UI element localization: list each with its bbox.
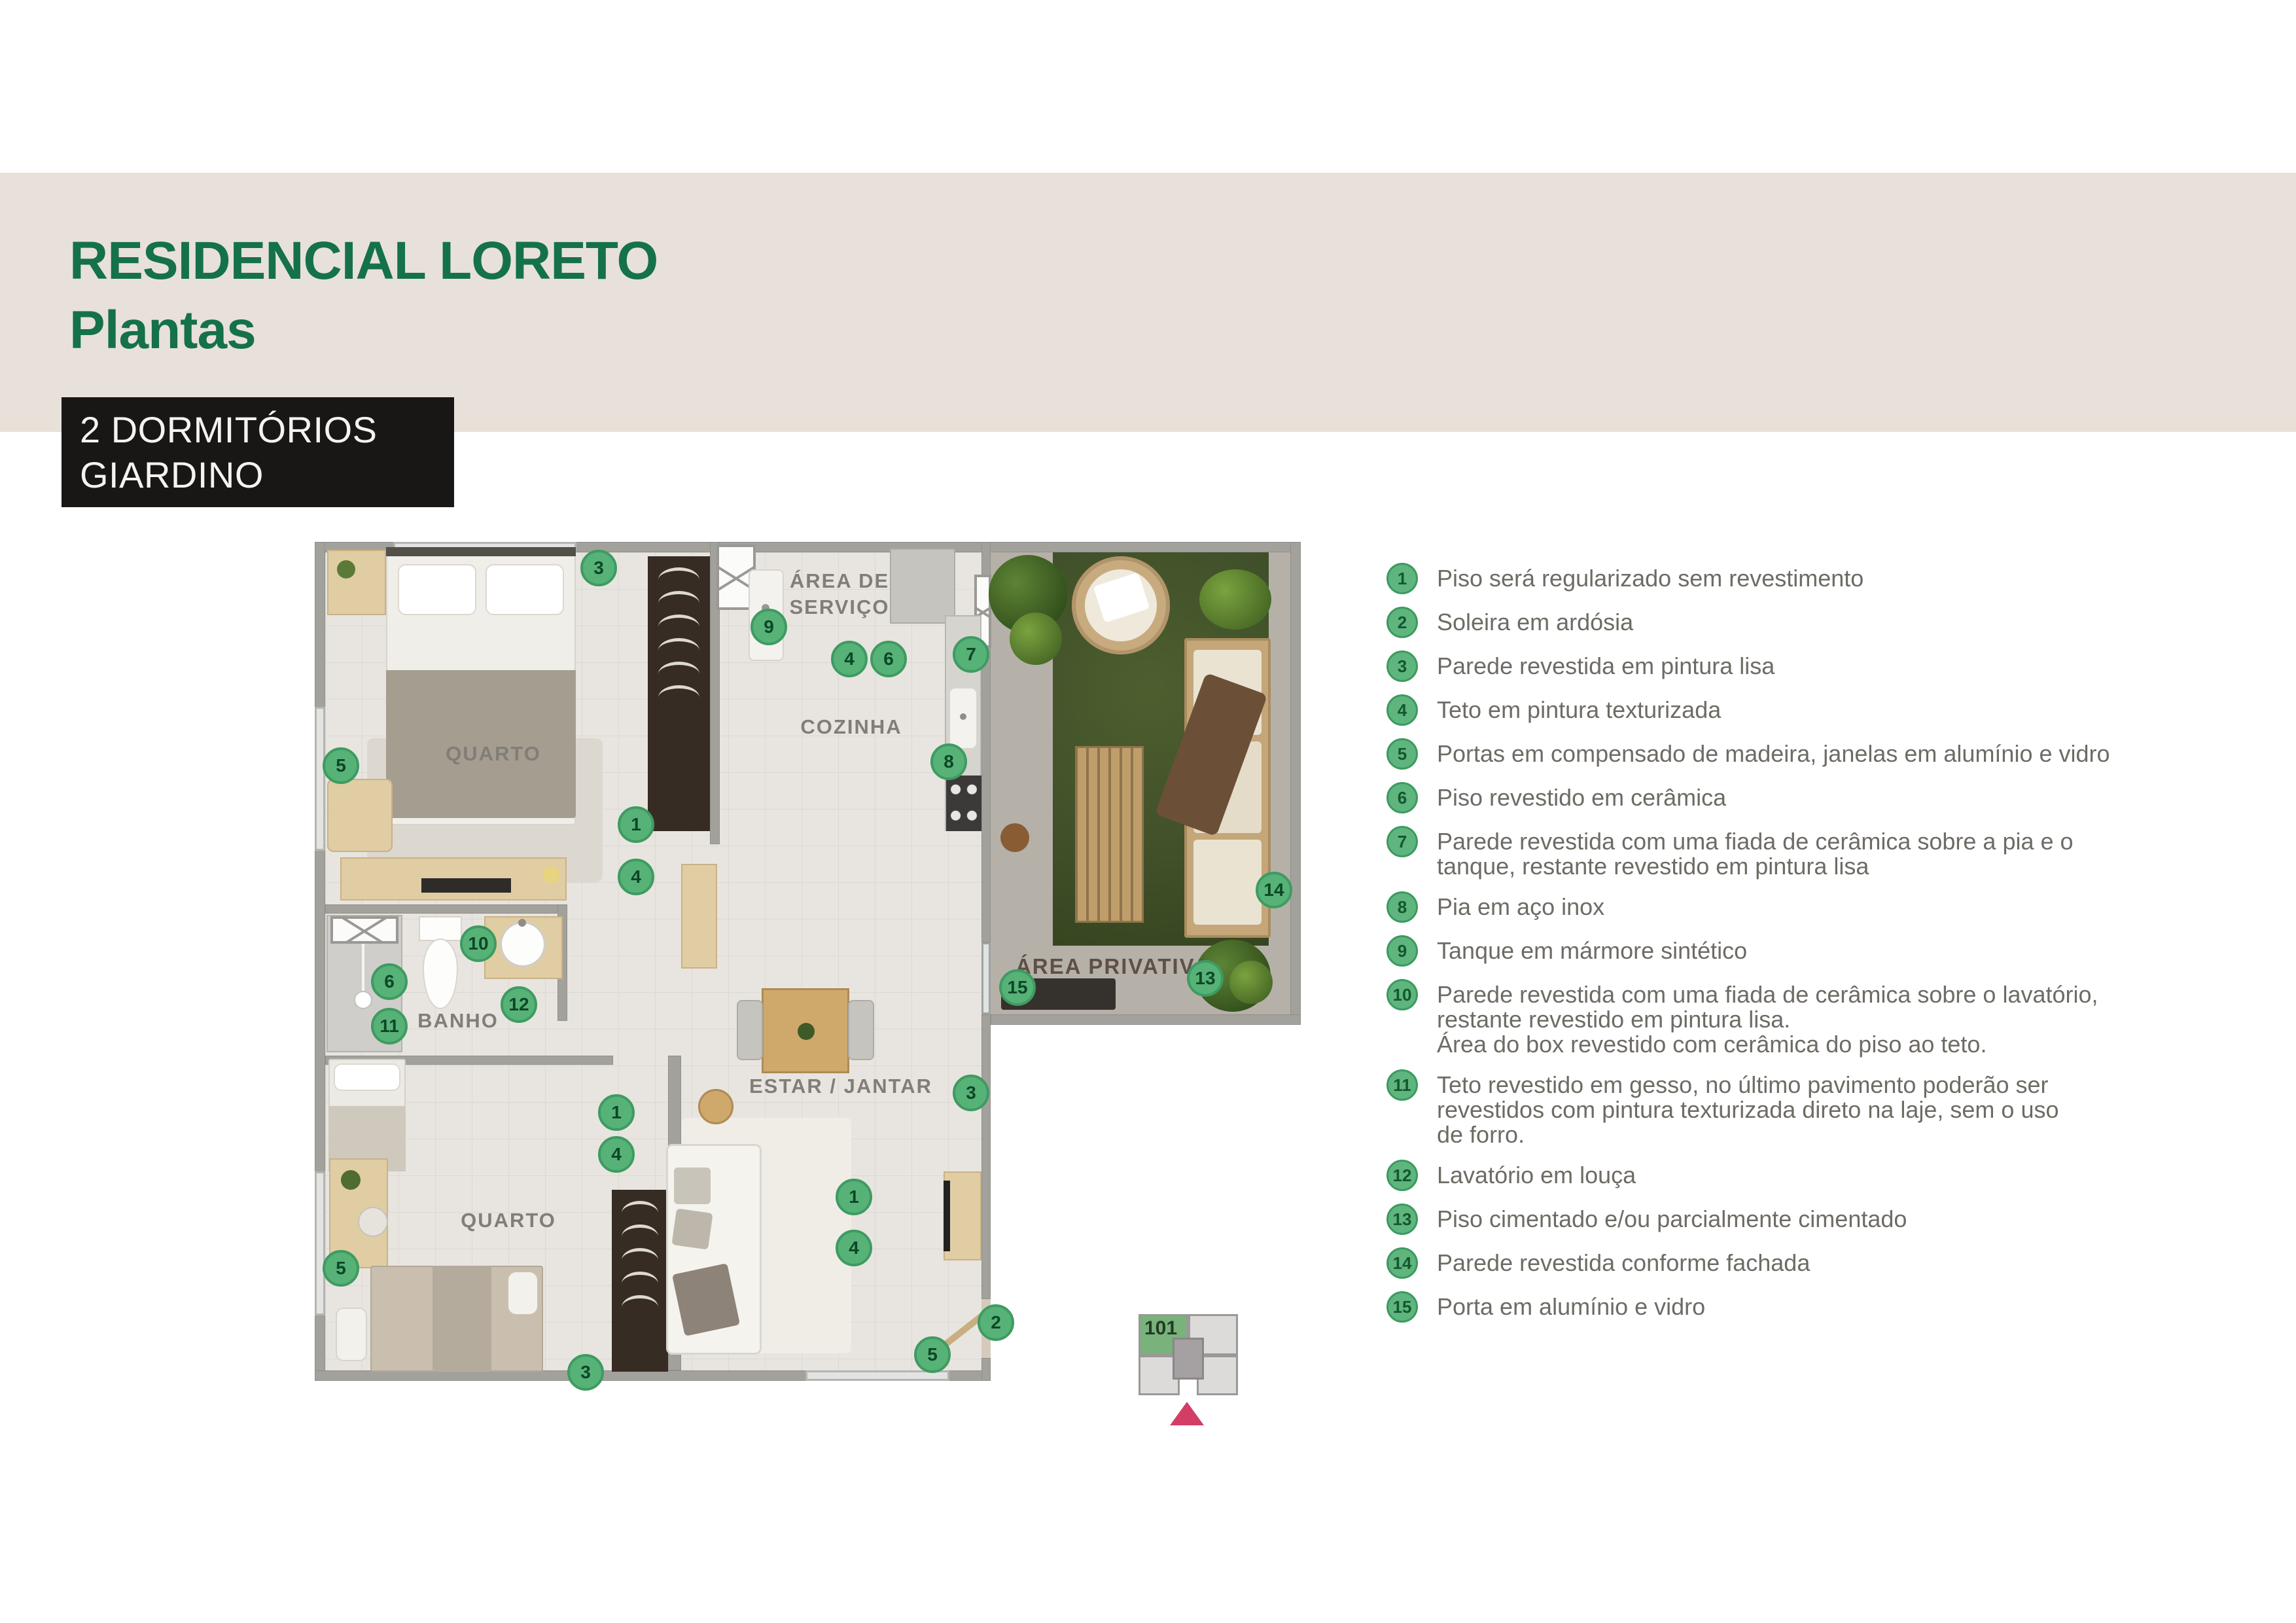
legend-number-badge: 1 <box>1386 563 1418 594</box>
plan-marker-10: 10 <box>460 925 497 962</box>
wardrobe-quarto2 <box>612 1190 668 1372</box>
label-estar-jantar: ESTAR / JANTAR <box>749 1075 932 1098</box>
unit-locator: 101 <box>1139 1314 1238 1397</box>
pillow <box>398 564 476 615</box>
plan-marker-3: 3 <box>953 1075 989 1111</box>
legend-item-7: 7Parede revestida com uma fiada de cerâm… <box>1386 826 2237 879</box>
plan-type-badge: 2 DORMITÓRIOS GIARDINO <box>62 397 454 507</box>
dining-chair <box>848 1000 874 1060</box>
hanger-icon <box>658 567 699 580</box>
legend-item-text: Piso revestido em cerâmica <box>1437 782 1726 810</box>
pillow <box>486 564 564 615</box>
legend-number-badge: 7 <box>1386 826 1418 857</box>
hanger-icon <box>622 1201 659 1213</box>
badge-line-2: GIARDINO <box>80 452 454 497</box>
plan-marker-6: 6 <box>371 963 408 1000</box>
legend-item-12: 12Lavatório em louça <box>1386 1160 2237 1191</box>
tv-flat <box>421 878 511 893</box>
plan-marker-13: 13 <box>1187 960 1224 997</box>
legend-number-badge: 4 <box>1386 694 1418 726</box>
pouf <box>336 1308 367 1361</box>
label-area-servico-2: SERVIÇO <box>790 596 890 619</box>
shower-head-icon <box>355 992 371 1008</box>
bush-icon <box>1010 613 1062 665</box>
plan-marker-8: 8 <box>930 743 967 780</box>
legend-item-13: 13Piso cimentado e/ou parcialmente cimen… <box>1386 1204 2237 1235</box>
plant-icon <box>337 560 355 579</box>
legend-number-badge: 13 <box>1386 1204 1418 1235</box>
plan-marker-4: 4 <box>618 859 654 895</box>
plant-icon <box>341 1170 361 1190</box>
side-table <box>698 1089 733 1124</box>
legend-item-4: 4Teto em pintura texturizada <box>1386 694 2237 726</box>
floor-plan: QUARTO ÁREA DE SERVIÇO COZINHA BANHO QUA… <box>315 542 1301 1381</box>
legend-number-badge: 9 <box>1386 935 1418 967</box>
legend-item-text: Porta em alumínio e vidro <box>1437 1291 1705 1319</box>
legend-item-3: 3Parede revestida em pintura lisa <box>1386 651 2237 682</box>
basin <box>500 921 546 967</box>
north-arrow-icon <box>1170 1402 1204 1425</box>
bush-icon <box>1199 569 1271 630</box>
desk-chair <box>358 1207 388 1237</box>
shower-rod <box>362 944 364 993</box>
label-banho: BANHO <box>417 1009 499 1033</box>
plan-marker-6: 6 <box>870 641 907 677</box>
hanger-icon <box>658 685 699 698</box>
wall-right-mid <box>981 1014 991 1299</box>
headboard <box>386 547 576 556</box>
legend-item-15: 15Porta em alumínio e vidro <box>1386 1291 2237 1323</box>
legend-item-text: Portas em compensado de madeira, janelas… <box>1437 738 2110 766</box>
legend-item-11: 11Teto revestido em gesso, no último pav… <box>1386 1069 2237 1147</box>
page-subtitle: Plantas <box>69 300 256 361</box>
hanger-icon <box>622 1248 659 1260</box>
hanger-icon <box>658 615 699 627</box>
legend-item-text: Teto em pintura texturizada <box>1437 694 1721 722</box>
garden-cushion <box>1193 840 1262 925</box>
label-quarto2: QUARTO <box>461 1209 556 1232</box>
stove <box>946 776 981 831</box>
plan-marker-1: 1 <box>618 806 654 843</box>
legend-item-text: Parede revestida conforme fachada <box>1437 1247 1810 1275</box>
legend-item-text: Soleira em ardósia <box>1437 607 1633 635</box>
legend-item-5: 5Portas em compensado de madeira, janela… <box>1386 738 2237 770</box>
legend-number-badge: 5 <box>1386 738 1418 770</box>
badge-line-1: 2 DORMITÓRIOS <box>80 407 454 452</box>
legend-number-badge: 6 <box>1386 782 1418 813</box>
plan-marker-11: 11 <box>371 1008 408 1044</box>
toilet-tank <box>419 916 462 941</box>
legend-item-14: 14Parede revestida conforme fachada <box>1386 1247 2237 1279</box>
faucet-icon <box>518 919 526 927</box>
legend-number-badge: 15 <box>1386 1291 1418 1323</box>
garden-wall-bottom <box>991 1014 1301 1025</box>
legend-item-6: 6Piso revestido em cerâmica <box>1386 782 2237 813</box>
legend-number-badge: 3 <box>1386 651 1418 682</box>
plan-marker-5: 5 <box>323 747 359 784</box>
legend-item-text: Piso será regularizado sem revestimento <box>1437 563 1863 591</box>
legend-item-2: 2Soleira em ardósia <box>1386 607 2237 638</box>
plan-marker-3: 3 <box>567 1354 604 1391</box>
legend-item-text: Pia em aço inox <box>1437 891 1604 919</box>
nightstand <box>327 550 386 615</box>
legend-item-text: Teto revestido em gesso, no último pavim… <box>1437 1069 2058 1147</box>
garden-deck <box>1075 746 1144 923</box>
pillow <box>508 1272 537 1314</box>
plan-marker-14: 14 <box>1256 872 1292 908</box>
sofa-pillow <box>671 1208 713 1249</box>
page-title: RESIDENCIAL LORETO <box>69 230 658 292</box>
legend-item-8: 8Pia em aço inox <box>1386 891 2237 923</box>
plan-marker-5: 5 <box>914 1336 951 1373</box>
plan-marker-5: 5 <box>323 1250 359 1287</box>
label-area-servico-1: ÁREA DE <box>790 569 889 593</box>
legend-number-badge: 8 <box>1386 891 1418 923</box>
label-area-privativa: ÁREA PRIVATIVA <box>1016 954 1210 979</box>
plan-marker-2: 2 <box>978 1304 1014 1341</box>
plan-marker-7: 7 <box>953 636 989 673</box>
table-plant-icon <box>798 1023 815 1040</box>
blanket-fold <box>433 1266 491 1372</box>
hanger-icon <box>658 591 699 603</box>
hanger-icon <box>622 1224 659 1237</box>
bush-icon <box>1229 961 1273 1004</box>
legend-number-badge: 10 <box>1386 979 1418 1010</box>
garden-glass-door <box>981 942 991 1014</box>
plan-marker-9: 9 <box>751 609 787 645</box>
lamp-icon <box>542 866 559 883</box>
hanger-icon <box>622 1272 659 1284</box>
hanger-icon <box>658 638 699 651</box>
legend-number-badge: 14 <box>1386 1247 1418 1279</box>
legend-item-text: Parede revestida em pintura lisa <box>1437 651 1775 679</box>
legend-item-text: Piso cimentado e/ou parcialmente cimenta… <box>1437 1204 1907 1232</box>
plan-marker-1: 1 <box>598 1094 635 1131</box>
label-cozinha: COZINHA <box>800 715 902 739</box>
plan-marker-1: 1 <box>836 1179 872 1215</box>
window-quarto1 <box>315 707 325 851</box>
legend-item-text: Parede revestida com uma fiada de cerâmi… <box>1437 826 2074 879</box>
legend-item-9: 9Tanque em mármore sintético <box>1386 935 2237 967</box>
washing-machine <box>890 548 955 624</box>
window-quarto2 <box>315 1171 325 1315</box>
sink-drain-icon <box>960 713 966 720</box>
finishes-legend: 1Piso será regularizado sem revestimento… <box>1386 563 2237 1335</box>
plan-marker-4: 4 <box>598 1136 635 1173</box>
locator-core <box>1173 1338 1204 1380</box>
legend-item-text: Lavatório em louça <box>1437 1160 1636 1188</box>
plan-marker-3: 3 <box>580 550 617 586</box>
sofa-pillow <box>674 1168 711 1204</box>
tv-flat <box>944 1181 950 1251</box>
wardrobe-quarto1 <box>648 556 710 831</box>
garden-wall-right <box>1290 542 1301 1025</box>
header-band <box>0 173 2296 432</box>
plan-marker-4: 4 <box>831 641 868 677</box>
hanger-icon <box>622 1295 659 1308</box>
legend-item-text: Tanque em mármore sintético <box>1437 935 1747 963</box>
wall-quarto1-bottom <box>325 904 567 914</box>
plan-marker-15: 15 <box>999 969 1036 1006</box>
legend-item-text: Parede revestida com uma fiada de cerâmi… <box>1437 979 2098 1057</box>
flower-pot-icon <box>1000 823 1029 852</box>
label-quarto1: QUARTO <box>446 742 541 766</box>
legend-number-badge: 2 <box>1386 607 1418 638</box>
legend-item-10: 10Parede revestida com uma fiada de cerâ… <box>1386 979 2237 1057</box>
shower-glass-icon <box>330 916 398 944</box>
legend-number-badge: 11 <box>1386 1069 1418 1101</box>
armchair <box>327 779 393 852</box>
pillow <box>334 1063 400 1091</box>
hanger-icon <box>658 662 699 674</box>
legend-item-1: 1Piso será regularizado sem revestimento <box>1386 563 2237 594</box>
legend-number-badge: 12 <box>1386 1160 1418 1191</box>
wall-right-stub <box>981 1358 991 1381</box>
plan-marker-4: 4 <box>836 1230 872 1266</box>
dining-chair <box>737 1000 763 1060</box>
hall-cabinet <box>681 864 717 969</box>
plan-marker-12: 12 <box>501 986 537 1023</box>
